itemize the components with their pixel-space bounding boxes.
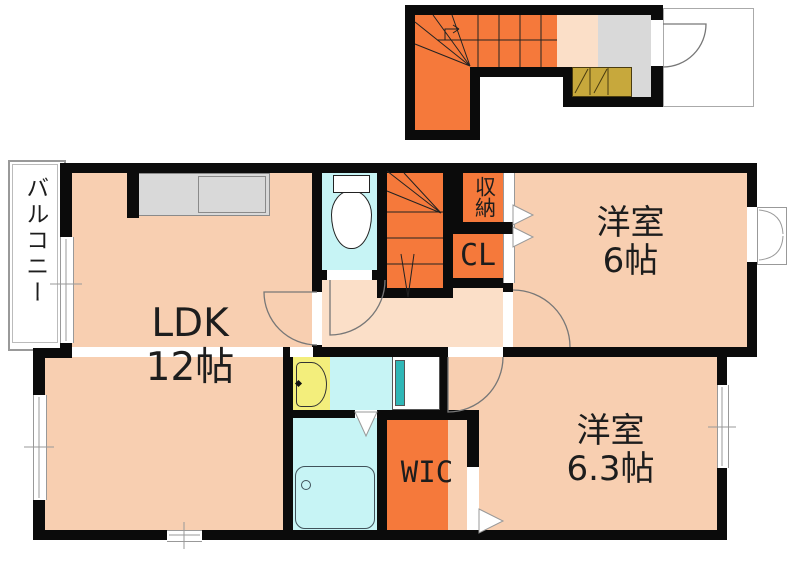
- entrance-porch: [663, 8, 754, 107]
- wall: [33, 530, 727, 540]
- balcony-label: バルコニー: [21, 176, 47, 336]
- wic-label: WIC: [387, 456, 467, 488]
- ldk-left-window: [33, 395, 47, 500]
- wall: [443, 222, 503, 234]
- bathtub-icon: [295, 466, 375, 529]
- toilet-door-opening: [327, 270, 372, 280]
- bedroom-lower-window: [717, 385, 729, 468]
- bathtub-drain-icon: [301, 480, 311, 490]
- wall: [377, 410, 479, 420]
- wic-door-opening: [467, 467, 479, 530]
- ldk-name: LDK: [110, 302, 270, 346]
- bedroom-lower-label: 洋室 6.3帖: [538, 412, 683, 488]
- wall: [503, 222, 513, 234]
- bedroom-upper-size: 6帖: [558, 242, 703, 280]
- bedroom-lower-door-opening: [448, 347, 503, 357]
- ldk-label: LDK 12帖: [110, 302, 270, 389]
- ldk-size: 12帖: [110, 346, 270, 390]
- ldk-bottom-window: [167, 530, 202, 542]
- stair-landing: [415, 15, 470, 130]
- wall: [467, 420, 479, 467]
- ldk-door-opening: [312, 292, 322, 345]
- wall: [283, 410, 355, 418]
- bedroom-lower-size: 6.3帖: [538, 450, 683, 488]
- storage-label: 収納: [472, 176, 496, 222]
- wall: [312, 270, 327, 280]
- wall: [377, 288, 453, 298]
- bedroom-upper-window-opening: [747, 207, 757, 262]
- toilet-tank-icon: [333, 175, 370, 193]
- wall: [33, 348, 72, 358]
- bedroom-lower-name: 洋室: [538, 412, 683, 450]
- wall: [747, 173, 757, 357]
- balcony-sliding-window: [60, 237, 74, 343]
- wall: [283, 347, 293, 530]
- casement-window-icon: [757, 207, 787, 265]
- wall: [33, 500, 45, 530]
- wall: [453, 173, 463, 222]
- wall: [60, 163, 757, 173]
- wall: [443, 278, 503, 288]
- wall: [313, 347, 448, 357]
- wall: [60, 163, 72, 237]
- wall: [440, 357, 448, 410]
- kitchen-sink: [198, 176, 266, 213]
- shoe-cabinet-icon: [572, 67, 632, 97]
- wall: [503, 283, 513, 292]
- bedroom-upper-label: 洋室 6帖: [558, 204, 703, 280]
- bedroom-upper-door-opening: [503, 292, 513, 345]
- wall: [127, 173, 139, 218]
- floor-plan: バルコニー LDK 12帖 洋室 6帖 洋室 6.3帖 WIC CL 収納: [0, 0, 800, 561]
- wall: [377, 410, 387, 530]
- washing-machine-detail: [395, 360, 405, 406]
- wall: [503, 347, 757, 357]
- entrance-door-opening: [651, 20, 663, 66]
- bedroom-upper-name: 洋室: [558, 204, 703, 242]
- washroom-door-opening: [290, 347, 313, 357]
- cl-label: CL: [453, 239, 503, 273]
- entrance-hall: [557, 15, 598, 67]
- wall: [377, 173, 387, 298]
- staircase-main: [387, 173, 443, 288]
